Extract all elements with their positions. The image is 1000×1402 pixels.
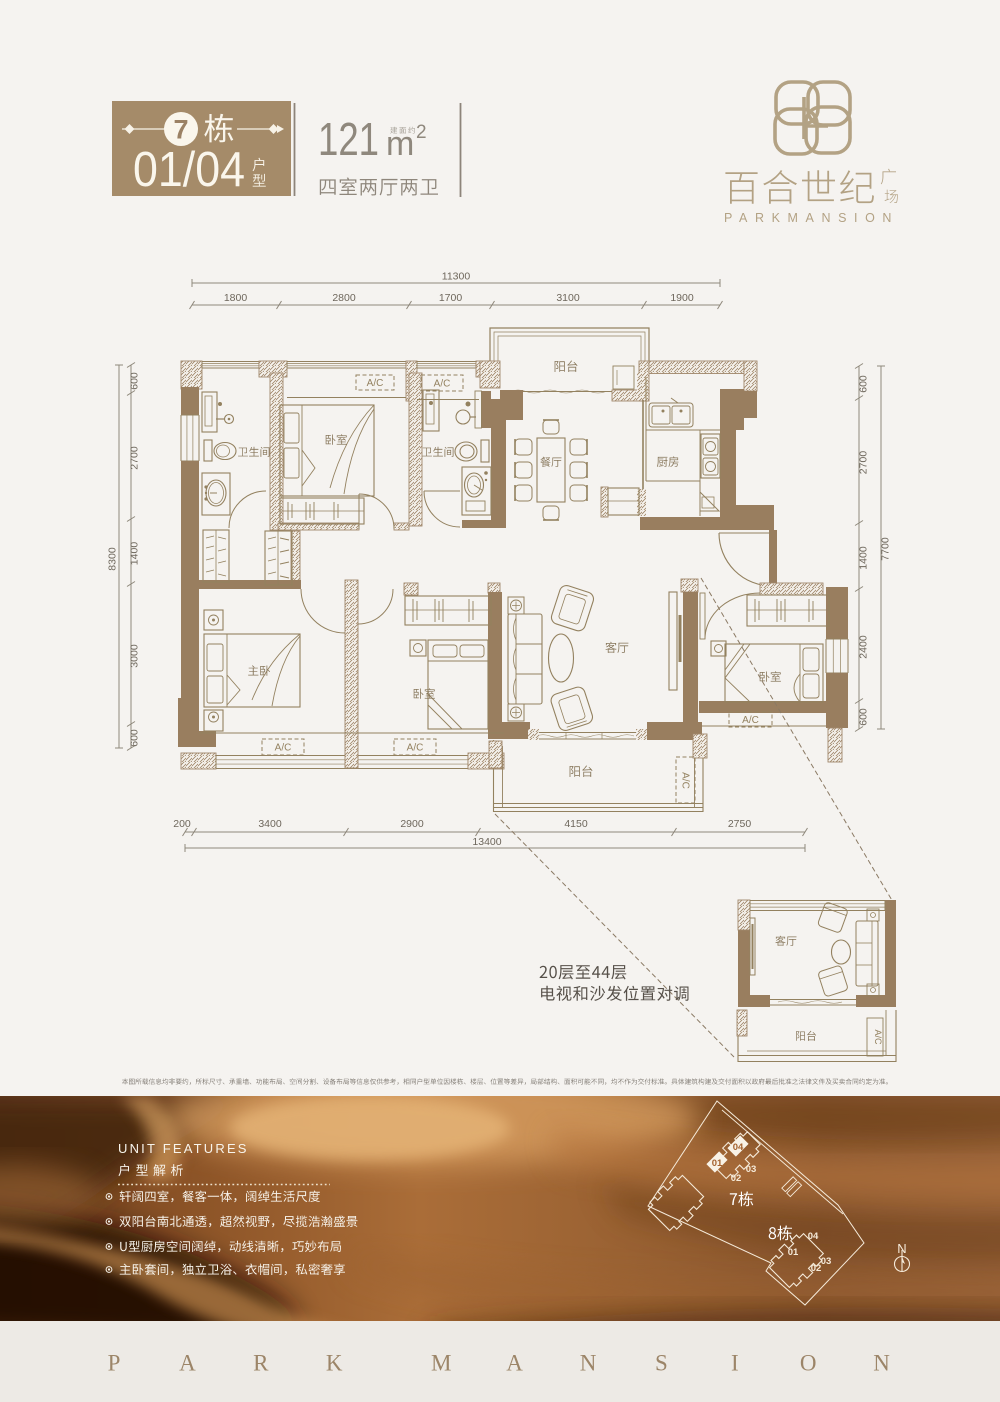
svg-text:11300: 11300: [442, 271, 471, 283]
svg-text:2: 2: [416, 122, 427, 143]
svg-text:8300: 8300: [107, 547, 119, 571]
svg-text:A: A: [506, 1351, 523, 1376]
svg-text:O: O: [800, 1351, 817, 1376]
svg-text:A/C: A/C: [873, 1029, 883, 1045]
svg-text:A/C: A/C: [275, 743, 292, 754]
svg-text:3400: 3400: [258, 818, 282, 830]
svg-text:K: K: [326, 1351, 343, 1376]
svg-text:A/C: A/C: [679, 772, 690, 789]
svg-text:M: M: [431, 1351, 451, 1376]
svg-text:A/C: A/C: [407, 743, 424, 754]
svg-text:A/C: A/C: [434, 379, 451, 390]
svg-text:1800: 1800: [224, 292, 248, 304]
svg-text:1400: 1400: [129, 542, 141, 566]
svg-text:02: 02: [731, 1173, 742, 1184]
svg-text:3100: 3100: [556, 292, 580, 304]
svg-text:N: N: [873, 1351, 890, 1376]
svg-text:600: 600: [858, 375, 870, 393]
svg-text:2700: 2700: [858, 451, 870, 475]
svg-text:2700: 2700: [129, 446, 141, 470]
svg-text:600: 600: [129, 729, 141, 747]
svg-text:A/C: A/C: [367, 378, 384, 389]
svg-text:A/C: A/C: [742, 715, 759, 726]
svg-text:2400: 2400: [858, 635, 870, 659]
svg-text:7: 7: [173, 115, 188, 145]
svg-text:I: I: [731, 1351, 739, 1376]
svg-text:600: 600: [129, 372, 141, 390]
svg-text:121: 121: [318, 113, 379, 165]
svg-text:2900: 2900: [400, 818, 424, 830]
svg-text:m: m: [386, 125, 414, 163]
svg-text:R: R: [253, 1351, 269, 1376]
svg-text:2800: 2800: [332, 292, 356, 304]
svg-text:1400: 1400: [858, 546, 870, 570]
svg-text:2750: 2750: [728, 818, 752, 830]
svg-text:600: 600: [858, 708, 870, 726]
svg-text:4150: 4150: [564, 818, 588, 830]
svg-text:01: 01: [712, 1158, 723, 1169]
svg-text:13400: 13400: [472, 836, 501, 848]
svg-text:04: 04: [733, 1142, 744, 1153]
svg-text:3000: 3000: [129, 644, 141, 668]
svg-text:02: 02: [811, 1263, 822, 1274]
svg-text:PARKMANSION: PARKMANSION: [724, 211, 899, 225]
svg-text:P: P: [108, 1351, 121, 1376]
svg-text:A: A: [179, 1351, 196, 1376]
svg-text:03: 03: [746, 1164, 757, 1175]
svg-text:01: 01: [788, 1247, 799, 1258]
svg-text:01/04: 01/04: [133, 143, 245, 197]
svg-text:UNIT FEATURES: UNIT FEATURES: [118, 1141, 249, 1156]
svg-text:N: N: [580, 1351, 597, 1376]
svg-text:S: S: [655, 1351, 668, 1376]
svg-text:1900: 1900: [670, 292, 694, 304]
svg-text:1700: 1700: [439, 292, 463, 304]
svg-text:04: 04: [808, 1231, 819, 1242]
svg-text:200: 200: [173, 818, 191, 830]
svg-text:03: 03: [821, 1256, 832, 1267]
svg-text:7700: 7700: [880, 537, 892, 561]
